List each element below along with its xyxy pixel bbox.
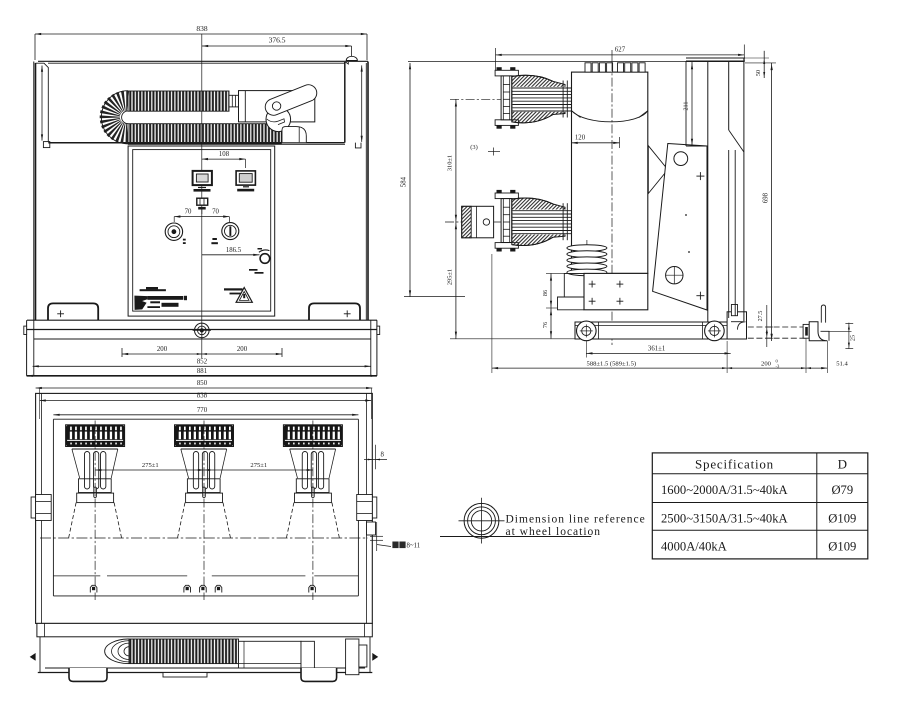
- svg-text:50: 50: [755, 70, 762, 76]
- svg-text:27.5: 27.5: [757, 311, 764, 322]
- svg-text:186.5: 186.5: [226, 247, 242, 254]
- svg-text:8~11: 8~11: [407, 543, 421, 550]
- svg-text:627: 627: [615, 47, 626, 54]
- svg-text:275±1: 275±1: [142, 462, 159, 469]
- svg-text:361±1: 361±1: [648, 346, 665, 353]
- svg-text:2500~3150A/31.5~40kA: 2500~3150A/31.5~40kA: [661, 511, 788, 525]
- svg-text:1600~2000A/31.5~40kA: 1600~2000A/31.5~40kA: [661, 483, 788, 497]
- svg-text:Ø109: Ø109: [828, 539, 856, 553]
- svg-text:770: 770: [197, 407, 208, 414]
- svg-text:120: 120: [575, 135, 586, 142]
- svg-text:Ø79: Ø79: [831, 483, 853, 497]
- svg-text:4000A/40kA: 4000A/40kA: [661, 539, 727, 553]
- svg-text:852: 852: [197, 358, 208, 365]
- svg-text:310±1: 310±1: [447, 155, 454, 171]
- svg-text:70: 70: [212, 209, 219, 216]
- svg-text:588±1.5 (589±1.5): 588±1.5 (589±1.5): [587, 360, 637, 367]
- svg-text:25: 25: [850, 335, 857, 341]
- svg-text:200: 200: [237, 346, 248, 353]
- svg-text:584: 584: [401, 176, 408, 187]
- svg-text:Specification: Specification: [695, 456, 774, 471]
- svg-text:376.5: 376.5: [269, 36, 286, 45]
- svg-text:D: D: [838, 456, 847, 471]
- svg-text:200: 200: [157, 346, 168, 353]
- svg-text:Dimension line reference: Dimension line reference: [506, 514, 646, 526]
- svg-text:51.4: 51.4: [836, 360, 848, 367]
- svg-text:881: 881: [197, 368, 207, 375]
- svg-text:70: 70: [185, 209, 192, 216]
- svg-text:108: 108: [219, 151, 230, 158]
- svg-text:698: 698: [763, 192, 770, 203]
- svg-text:838: 838: [196, 24, 208, 33]
- svg-text:275±1: 275±1: [250, 462, 267, 469]
- svg-text:8: 8: [381, 452, 385, 459]
- svg-text:295±1: 295±1: [447, 269, 454, 285]
- svg-text:211: 211: [683, 101, 690, 110]
- svg-text:76: 76: [542, 322, 549, 328]
- svg-text:(3): (3): [470, 144, 477, 151]
- svg-text:Ø109: Ø109: [828, 511, 856, 525]
- svg-text:850: 850: [197, 380, 208, 387]
- svg-text:200: 200: [761, 360, 772, 367]
- svg-text:at wheel location: at wheel location: [506, 526, 602, 538]
- svg-text:86: 86: [542, 290, 549, 296]
